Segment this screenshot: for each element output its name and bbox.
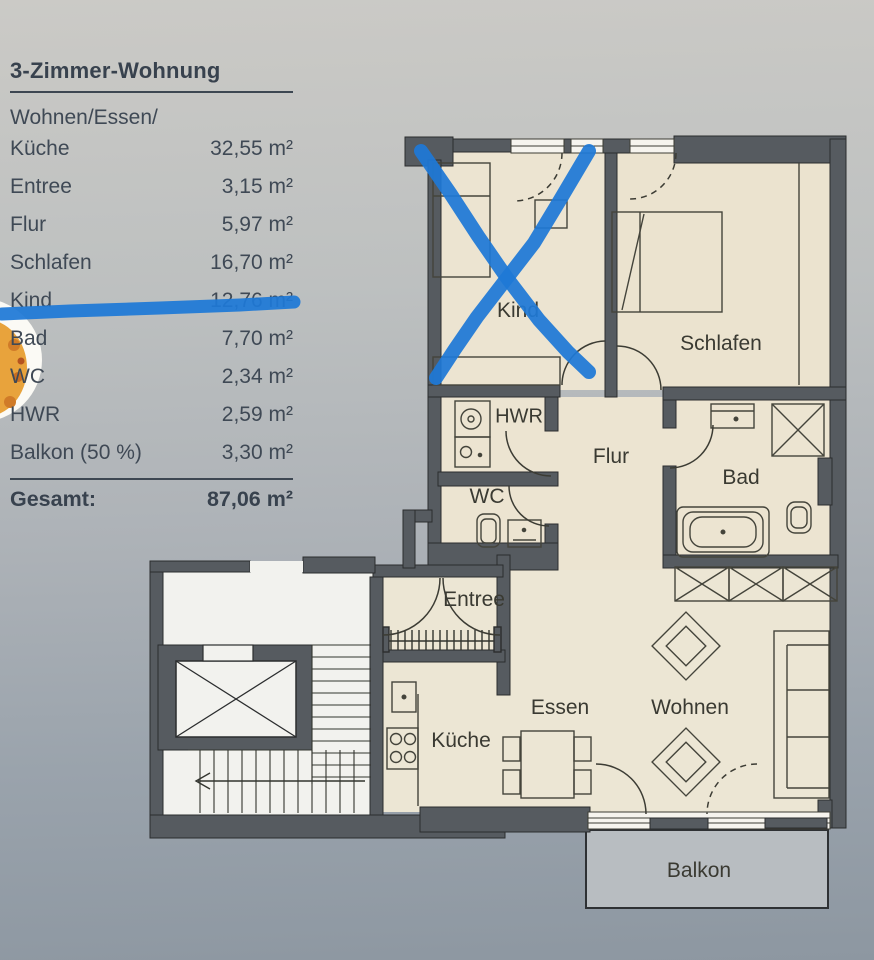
row-value: 12,76 m²: [210, 289, 293, 313]
table-row: Wohnen/Essen/: [10, 101, 293, 130]
table-total-row: Gesamt: 87,06 m²: [10, 478, 293, 512]
row-label: WC: [10, 365, 45, 389]
table-row: WC 2,34 m²: [10, 358, 293, 396]
floorplan-page: 3-Zimmer-Wohnung Wohnen/Essen/ Küche 32,…: [0, 0, 874, 960]
row-label: Entree: [10, 175, 72, 199]
row-label: Schlafen: [10, 251, 92, 275]
row-label: Flur: [10, 213, 46, 237]
room-label-wc: WC: [470, 485, 505, 509]
row-value: 7,70 m²: [222, 327, 293, 351]
room-label-wohnen: Wohnen: [651, 696, 729, 720]
total-label: Gesamt:: [10, 487, 96, 512]
room-label-bad: Bad: [722, 466, 759, 490]
room-label-kueche: Küche: [431, 729, 491, 753]
page-title: 3-Zimmer-Wohnung: [10, 58, 293, 93]
row-value: 5,97 m²: [222, 213, 293, 237]
table-row: Schlafen 16,70 m²: [10, 244, 293, 282]
row-value: 3,30 m²: [222, 441, 293, 465]
table-row: Entree 3,15 m²: [10, 168, 293, 206]
row-label: Wohnen/Essen/: [10, 106, 158, 130]
row-value: 2,59 m²: [222, 403, 293, 427]
table-row: Balkon (50 %) 3,30 m²: [10, 434, 293, 472]
room-label-balkon: Balkon: [667, 859, 731, 883]
table-row: Bad 7,70 m²: [10, 320, 293, 358]
table-row: HWR 2,59 m²: [10, 396, 293, 434]
total-value: 87,06 m²: [207, 487, 293, 512]
row-label: Bad: [10, 327, 47, 351]
room-label-flur: Flur: [593, 445, 629, 469]
row-label: HWR: [10, 403, 60, 427]
row-value: 32,55 m²: [210, 137, 293, 161]
row-value: 2,34 m²: [222, 365, 293, 389]
area-table: 3-Zimmer-Wohnung Wohnen/Essen/ Küche 32,…: [10, 58, 293, 512]
room-label-essen: Essen: [531, 696, 589, 720]
table-row-crossed-out: Kind 12,76 m²: [10, 282, 293, 320]
row-label: Küche: [10, 137, 70, 161]
room-label-entree: Entree: [443, 588, 505, 612]
room-label-kind: Kind: [497, 299, 539, 323]
row-value: 3,15 m²: [222, 175, 293, 199]
room-label-hwr: HWR: [495, 406, 543, 429]
row-label: Balkon (50 %): [10, 441, 142, 465]
table-row: Küche 32,55 m²: [10, 130, 293, 168]
room-label-schlafen: Schlafen: [680, 332, 762, 356]
row-value: 16,70 m²: [210, 251, 293, 275]
row-label: Kind: [10, 289, 52, 313]
table-row: Flur 5,97 m²: [10, 206, 293, 244]
